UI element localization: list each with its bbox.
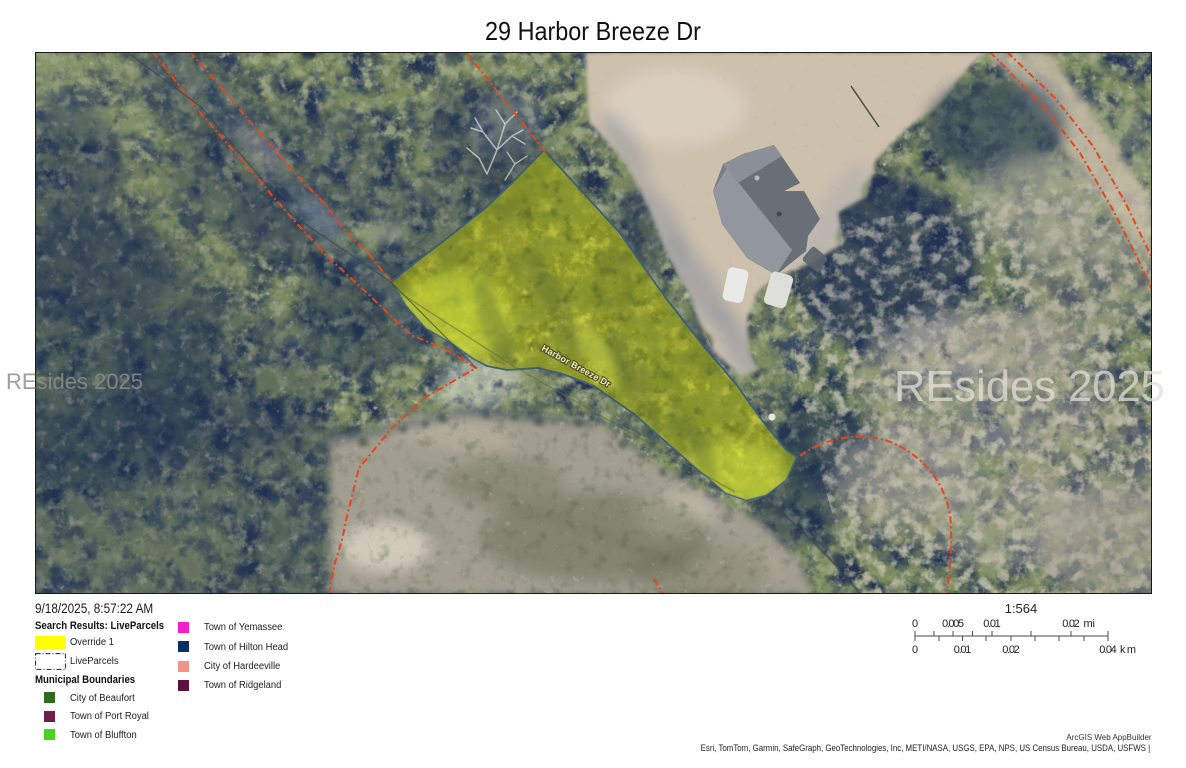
svg-text:0.02: 0.02 (1002, 644, 1020, 656)
svg-text:0.01: 0.01 (983, 618, 1001, 630)
svg-text:0: 0 (912, 618, 918, 630)
svg-text:km: km (1120, 644, 1136, 656)
svg-text:0.005: 0.005 (942, 618, 964, 630)
svg-text:mi: mi (1084, 618, 1096, 630)
svg-text:0.04: 0.04 (1099, 644, 1117, 656)
svg-text:0.02: 0.02 (1062, 618, 1080, 630)
svg-text:0.01: 0.01 (954, 644, 972, 656)
svg-text:0: 0 (912, 644, 918, 656)
